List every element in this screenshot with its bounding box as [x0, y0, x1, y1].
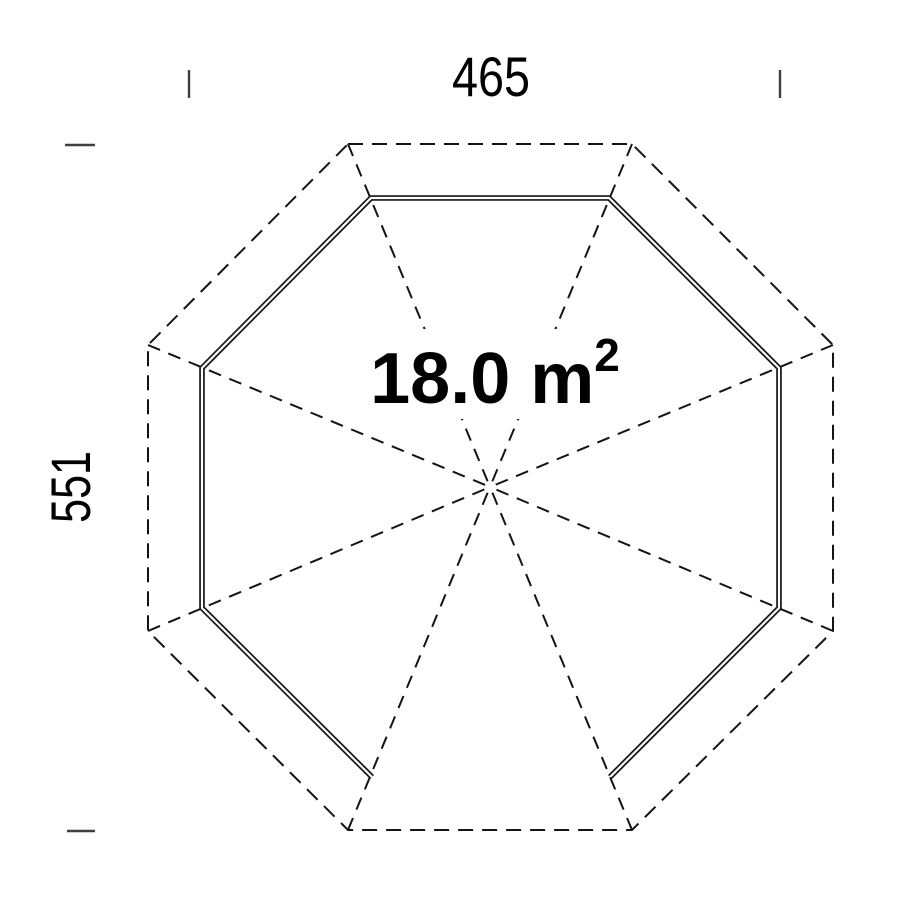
roof-ridge-lines	[148, 144, 833, 830]
depth-dimension-label: 551	[39, 451, 102, 523]
area-superscript: 2	[594, 329, 620, 381]
roof-overhang-edge	[148, 144, 833, 830]
area-label: 18.0 m2	[370, 329, 620, 419]
roof-ridge-line-5	[490, 487, 632, 830]
roof-ridge-line-6	[348, 487, 490, 830]
roof-overhang-outline	[148, 144, 833, 830]
wall-outline	[202, 198, 779, 777]
wall-line-outer	[202, 198, 779, 777]
area-value: 18.0 m	[370, 339, 594, 419]
floor-plan-page: 18.0 m2 465 551	[0, 0, 901, 901]
floor-plan-canvas: 18.0 m2 465 551	[0, 0, 901, 901]
width-dimension-label: 465	[452, 45, 530, 108]
